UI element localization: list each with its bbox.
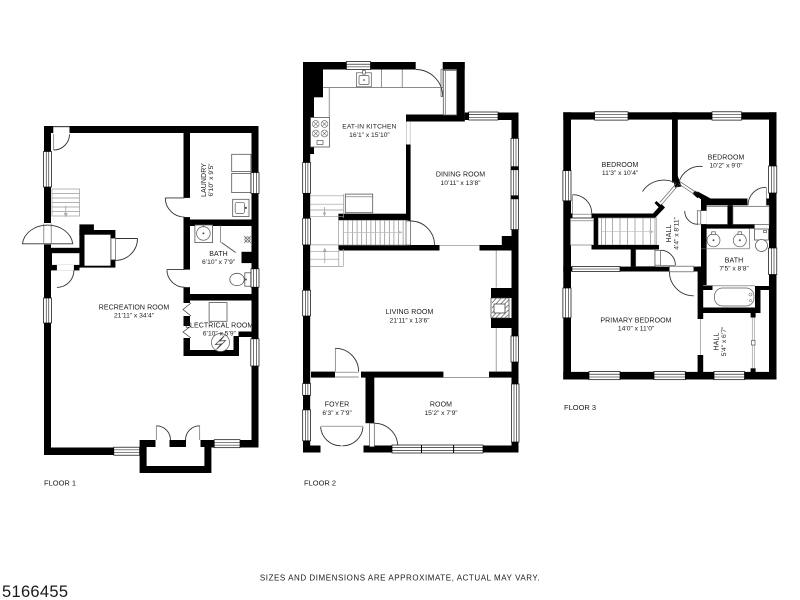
svg-text:21’11” x 13’6”: 21’11” x 13’6” — [389, 318, 429, 325]
svg-text:ELECTRICAL ROOM: ELECTRICAL ROOM — [185, 323, 253, 330]
svg-text:10’11” x 13’8”: 10’11” x 13’8” — [440, 180, 480, 187]
svg-text:5’4” x 6’7”: 5’4” x 6’7” — [721, 327, 728, 356]
svg-text:11’3” x 10’4”: 11’3” x 10’4” — [602, 170, 638, 177]
svg-text:FOYER: FOYER — [325, 402, 350, 409]
svg-text:10’2” x 9’0”: 10’2” x 9’0” — [709, 163, 742, 170]
svg-text:LIVING ROOM: LIVING ROOM — [386, 309, 434, 316]
svg-text:FLOOR 2: FLOOR 2 — [304, 479, 336, 488]
svg-text:15’2” x 7’9”: 15’2” x 7’9” — [424, 410, 457, 417]
svg-text:LAUNDRY: LAUNDRY — [201, 163, 208, 197]
svg-text:ROOM: ROOM — [430, 402, 452, 409]
svg-text:EAT-IN KITCHEN: EAT-IN KITCHEN — [342, 124, 396, 131]
svg-text:6’10” x 7’9”: 6’10” x 7’9” — [202, 259, 235, 266]
svg-text:FLOOR 3: FLOOR 3 — [564, 403, 596, 412]
svg-text:SIZES AND DIMENSIONS ARE APPRO: SIZES AND DIMENSIONS ARE APPROXIMATE, AC… — [260, 574, 540, 583]
svg-text:5166455: 5166455 — [2, 583, 68, 600]
svg-text:FLOOR 1: FLOOR 1 — [44, 479, 76, 488]
svg-text:BATH: BATH — [209, 251, 228, 258]
svg-text:4’4” x 8’11”: 4’4” x 8’11” — [674, 217, 681, 250]
svg-text:21’11” x 34’4”: 21’11” x 34’4” — [114, 313, 154, 320]
svg-text:RECREATION ROOM: RECREATION ROOM — [99, 305, 170, 312]
svg-text:16’1” x 15’10”: 16’1” x 15’10” — [349, 132, 390, 139]
svg-text:BEDROOM: BEDROOM — [708, 155, 745, 162]
svg-text:DINING ROOM: DINING ROOM — [436, 171, 485, 178]
svg-text:6’10” x 5’9”: 6’10” x 5’9” — [203, 331, 236, 338]
svg-text:HALL: HALL — [714, 333, 721, 351]
svg-text:14’0” x 11’0”: 14’0” x 11’0” — [618, 326, 654, 333]
svg-text:6’3” x 7’9”: 6’3” x 7’9” — [322, 410, 351, 417]
svg-text:6’10” x 9’5”: 6’10” x 9’5” — [208, 163, 215, 196]
svg-text:PRIMARY BEDROOM: PRIMARY BEDROOM — [600, 318, 671, 325]
svg-text:BEDROOM: BEDROOM — [602, 162, 639, 169]
svg-text:7’5” x 8’8”: 7’5” x 8’8” — [719, 266, 748, 273]
svg-text:BATH: BATH — [725, 258, 744, 265]
svg-text:HALL: HALL — [666, 225, 673, 243]
